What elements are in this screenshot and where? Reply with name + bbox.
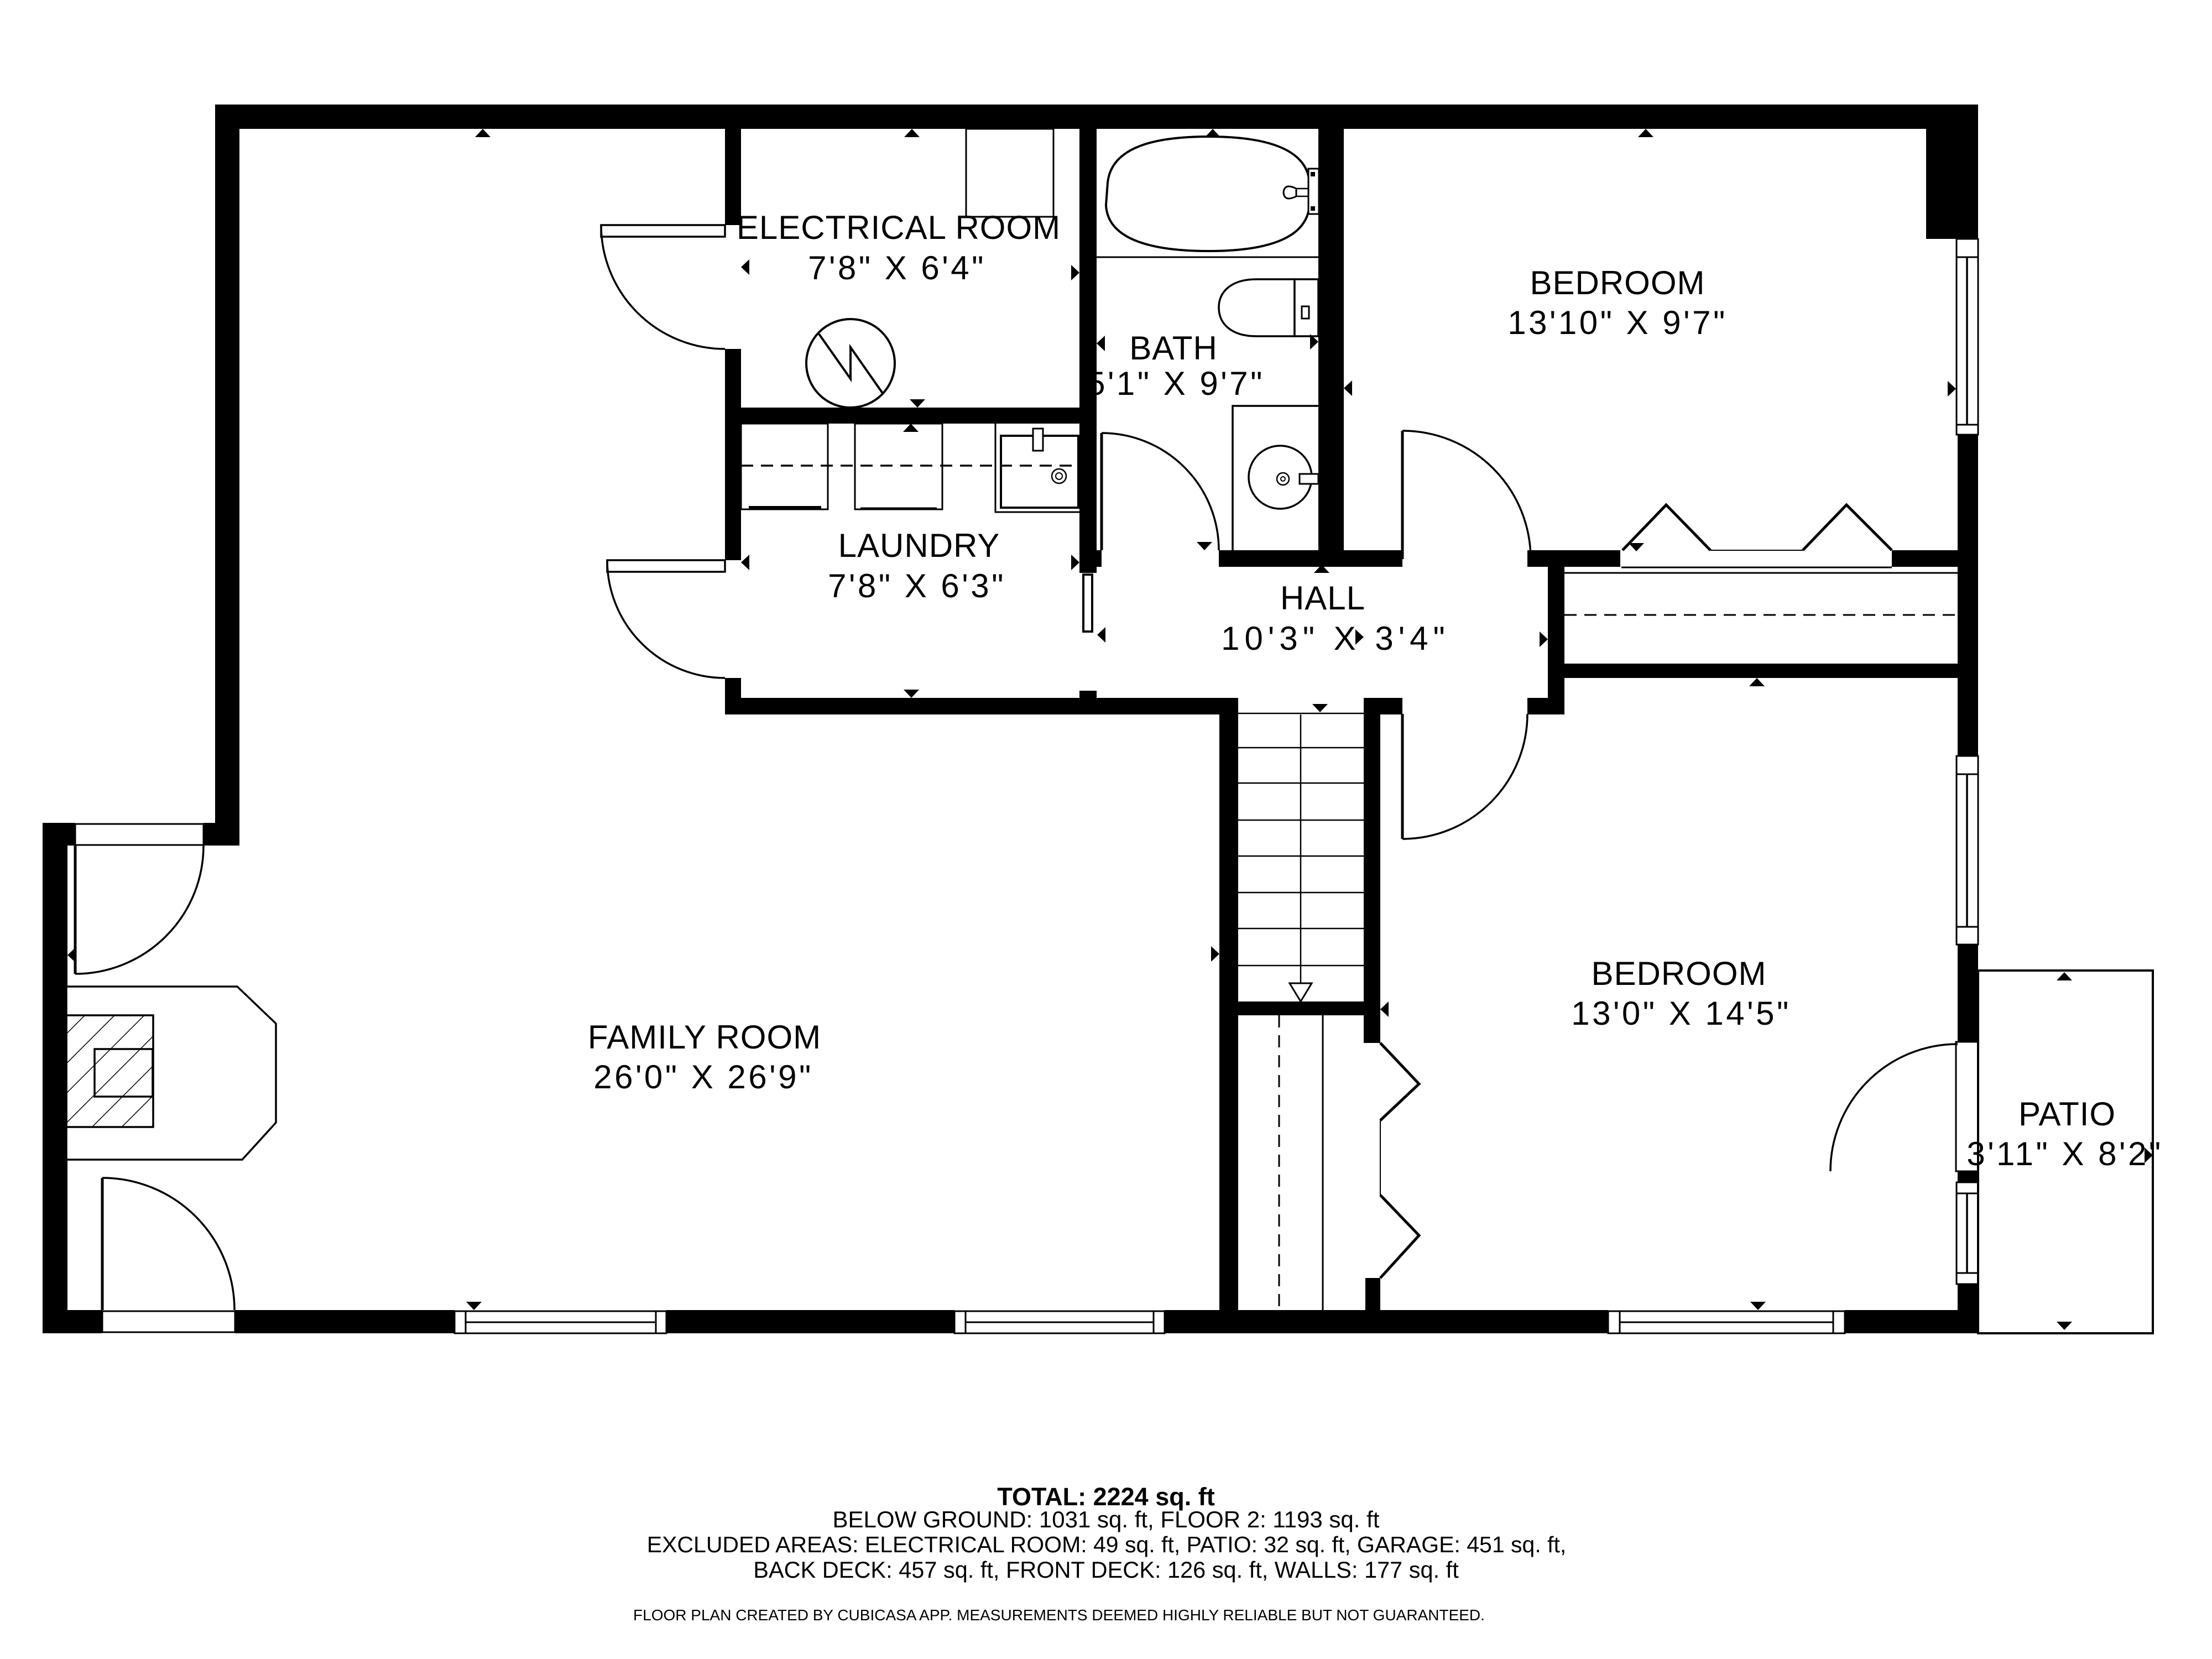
svg-text:ELECTRICAL ROOM: ELECTRICAL ROOM xyxy=(737,209,1061,246)
svg-text:FAMILY ROOM: FAMILY ROOM xyxy=(588,1019,821,1056)
svg-text:BEDROOM: BEDROOM xyxy=(1591,955,1766,992)
svg-text:26'0" X 26'9": 26'0" X 26'9" xyxy=(593,1058,813,1095)
svg-text:BEDROOM: BEDROOM xyxy=(1530,264,1705,301)
svg-text:3'11" X 8'2": 3'11" X 8'2" xyxy=(1966,1135,2163,1172)
svg-text:LAUNDRY: LAUNDRY xyxy=(838,527,1000,564)
svg-text:7'8" X 6'4": 7'8" X 6'4" xyxy=(808,249,986,286)
svg-text:HALL: HALL xyxy=(1280,580,1365,617)
svg-text:13'10" X 9'7": 13'10" X 9'7" xyxy=(1507,304,1728,341)
svg-text:7'8" X 6'3": 7'8" X 6'3" xyxy=(828,567,1006,604)
svg-text:5'1" X 9'7": 5'1" X 9'7" xyxy=(1087,365,1265,402)
svg-text:10'3" X 3'4": 10'3" X 3'4" xyxy=(1221,620,1450,657)
svg-text:BELOW GROUND: 1031 sq. ft, FLO: BELOW GROUND: 1031 sq. ft, FLOOR 2: 1193… xyxy=(833,1506,1380,1532)
svg-text:BACK DECK: 457 sq. ft, FRONT D: BACK DECK: 457 sq. ft, FRONT DECK: 126 s… xyxy=(753,1557,1459,1583)
svg-text:BATH: BATH xyxy=(1129,330,1218,367)
svg-text:PATIO: PATIO xyxy=(2018,1095,2116,1133)
svg-text:EXCLUDED AREAS: ELECTRICAL ROO: EXCLUDED AREAS: ELECTRICAL ROOM: 49 sq. … xyxy=(647,1532,1567,1557)
svg-text:FLOOR PLAN CREATED BY CUBICASA: FLOOR PLAN CREATED BY CUBICASA APP. MEAS… xyxy=(633,1606,1485,1624)
svg-text:13'0" X 14'5": 13'0" X 14'5" xyxy=(1571,995,1791,1032)
